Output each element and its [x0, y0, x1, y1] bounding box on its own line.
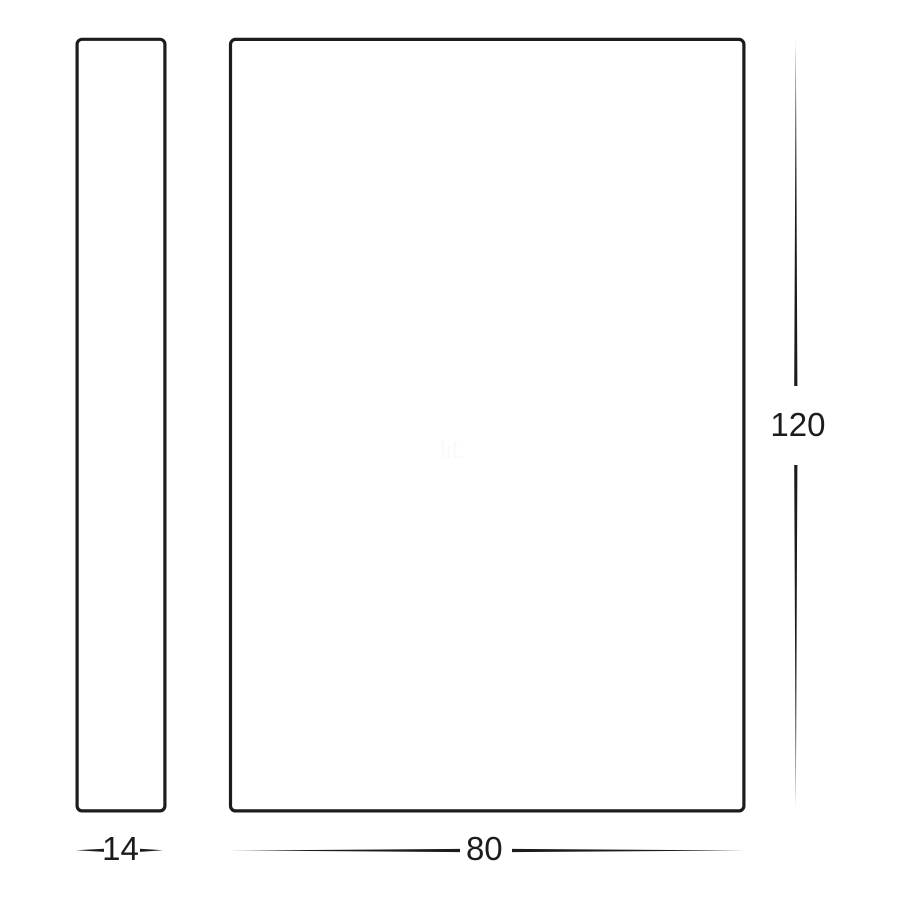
svg-text:lit.: lit.: [440, 434, 466, 464]
svg-text:14: 14: [102, 830, 139, 867]
svg-text:120: 120: [770, 406, 825, 443]
svg-text:80: 80: [466, 830, 503, 867]
